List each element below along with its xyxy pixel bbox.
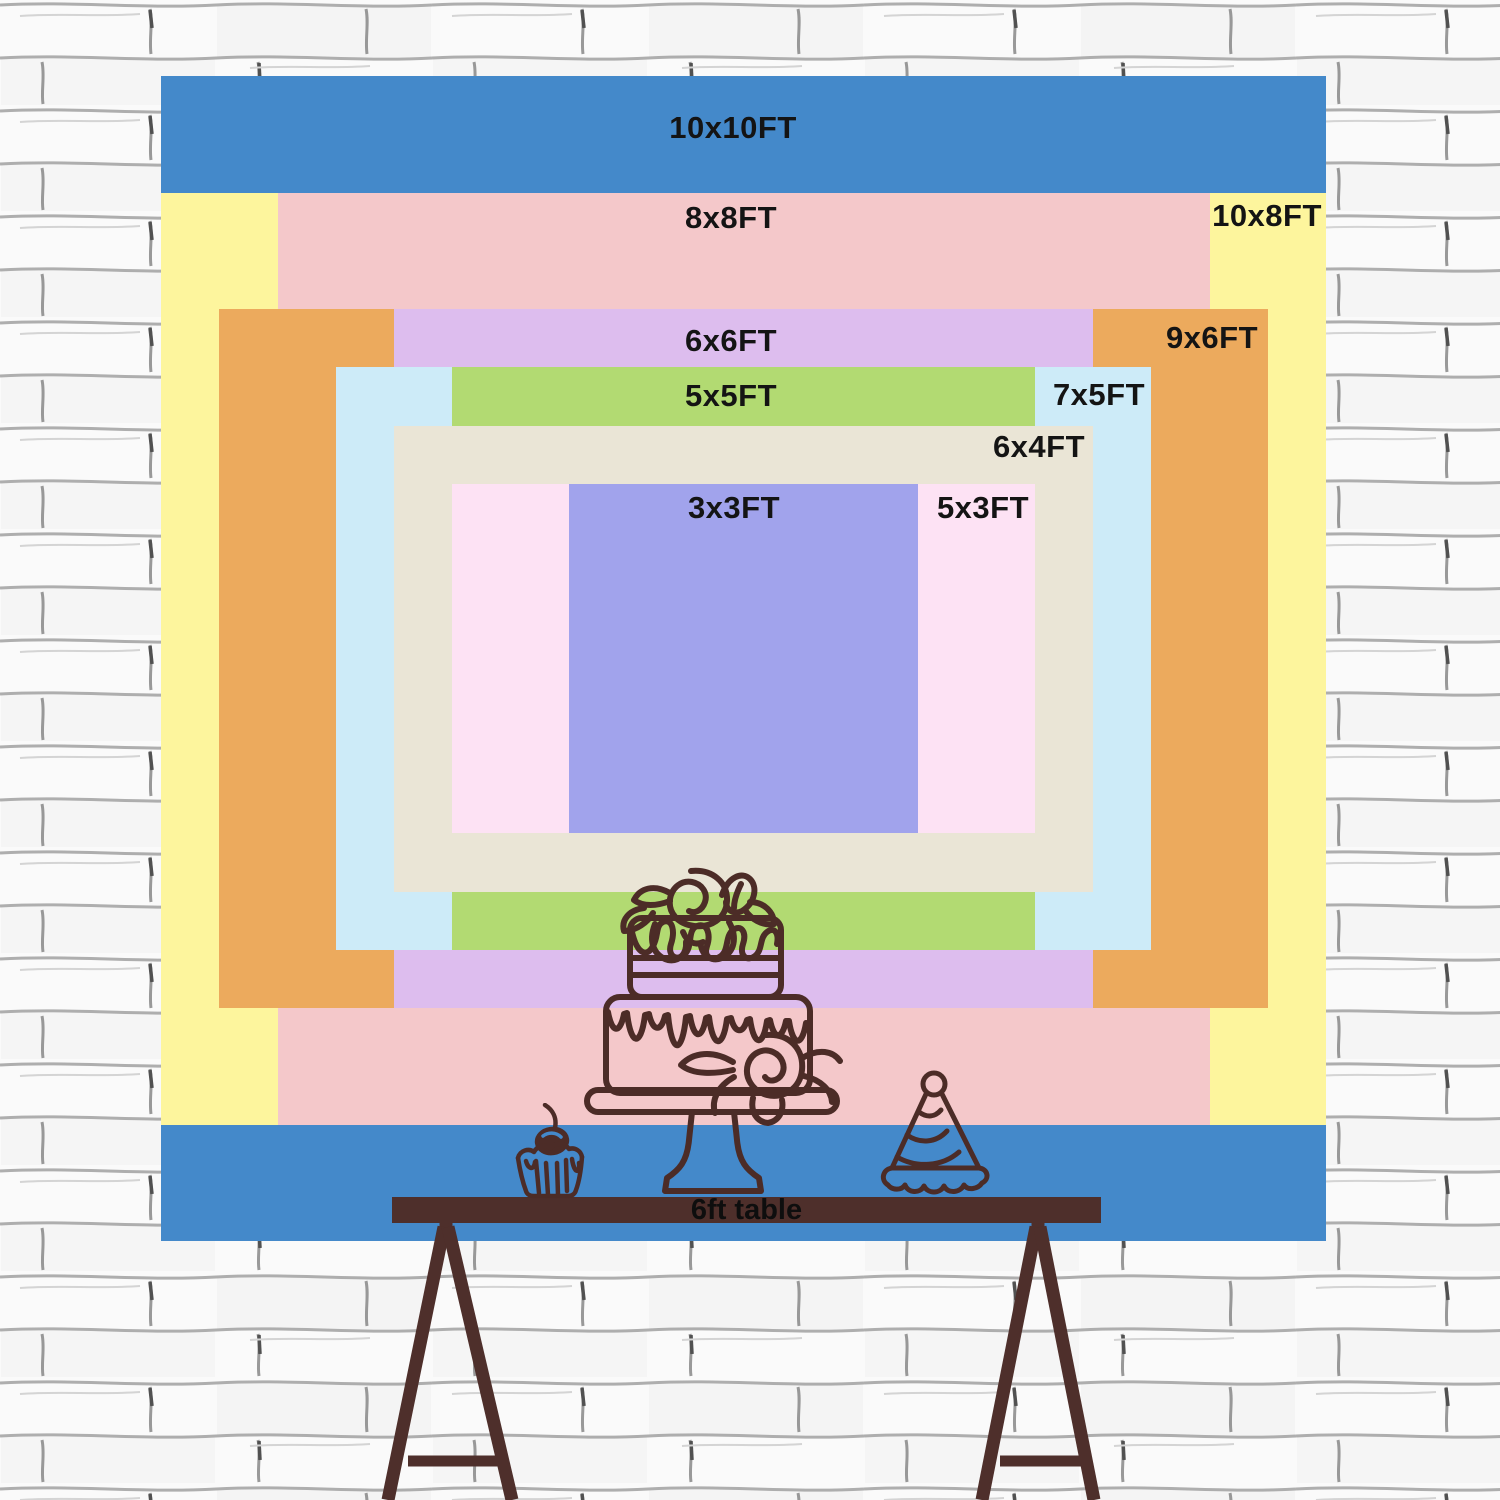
table-size-label: 6ft table (691, 1197, 802, 1223)
size-label-6x6: 6x6FT (685, 323, 777, 359)
size-label-8x8: 8x8FT (685, 200, 777, 236)
backdrop-size-chart-image: 10x10FT10x8FT8x8FT9x6FT6x6FT7x5FT5x5FT6x… (0, 0, 1500, 1500)
party-hat-icon (880, 1069, 992, 1197)
size-label-9x6: 9x6FT (1166, 320, 1258, 356)
size-label-10x8: 10x8FT (1212, 198, 1322, 234)
cupcake-icon (510, 1103, 592, 1199)
table-legs-icon (330, 1221, 1140, 1500)
size-rect-3x3 (569, 484, 919, 834)
size-label-5x3: 5x3FT (937, 490, 1029, 526)
size-label-6x4: 6x4FT (993, 429, 1085, 465)
size-label-5x5: 5x5FT (685, 378, 777, 414)
size-label-10x10: 10x10FT (669, 110, 797, 146)
size-label-3x3: 3x3FT (688, 490, 780, 526)
birthday-cake-icon (583, 862, 847, 1197)
size-label-7x5: 7x5FT (1053, 377, 1145, 413)
table-top-bar: 6ft table (392, 1197, 1101, 1223)
